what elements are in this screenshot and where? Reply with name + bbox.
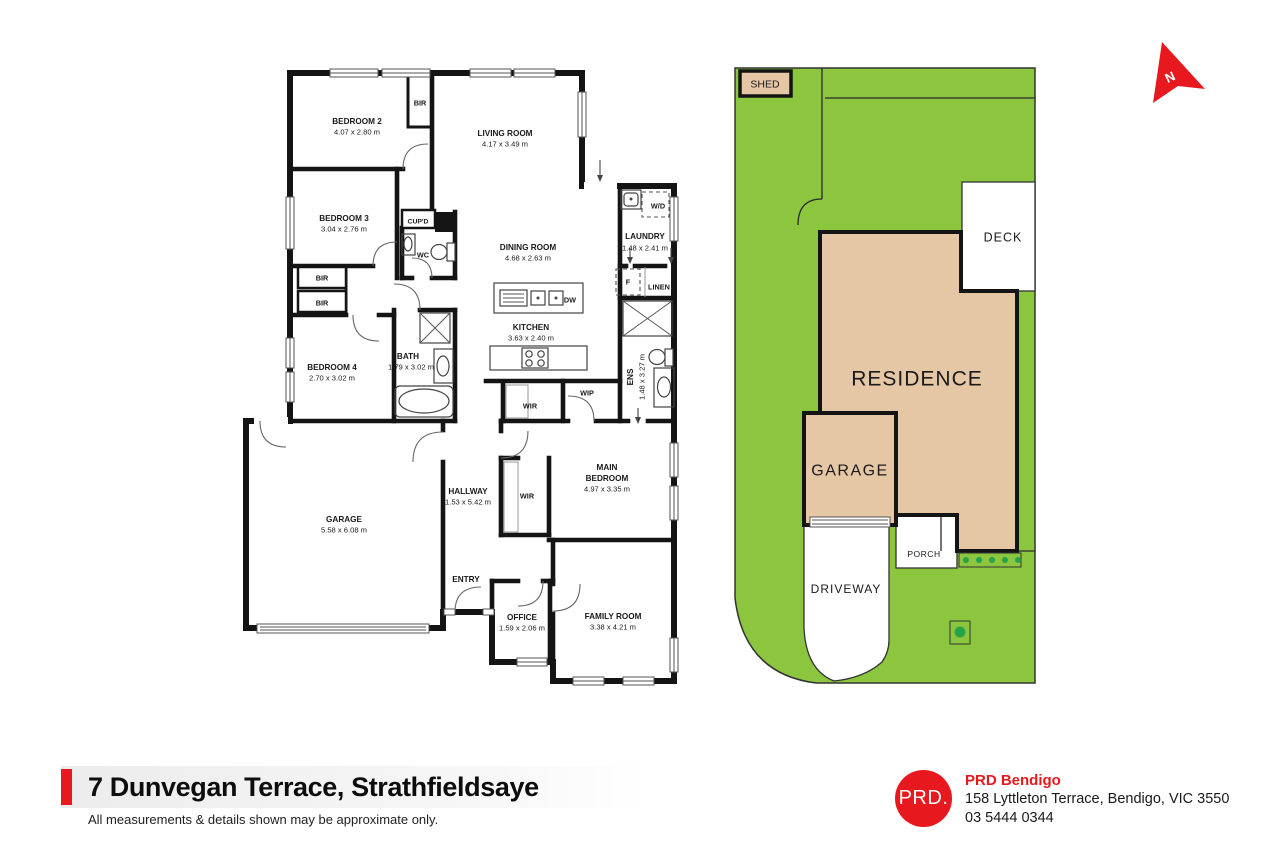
label-bedroom-4-21: BEDROOM 4 xyxy=(307,363,357,372)
disclaimer-text: All measurements & details shown may be … xyxy=(88,812,438,827)
label-4-07-x-2-80-m-1: 4.07 x 2.80 m xyxy=(334,128,380,137)
tree-dot xyxy=(955,627,966,638)
label-kitchen-19: KITCHEN xyxy=(513,323,549,332)
label-wir-28: WIR xyxy=(523,402,538,411)
label-1-48-x-2-41-m-13: 1.48 x 2.41 m xyxy=(622,244,668,253)
label-driveway-47: DRIVEWAY xyxy=(811,582,882,596)
agency-name: PRD Bendigo xyxy=(965,771,1229,790)
label-dw-18: DW xyxy=(564,296,576,305)
label-office-38: OFFICE xyxy=(507,613,538,622)
label-deck-43: DECK xyxy=(984,230,1023,244)
label-bir-2: BIR xyxy=(414,99,427,108)
prd-logo-icon: PRD. xyxy=(895,770,952,827)
label-laundry-12: LAUNDRY xyxy=(625,232,665,241)
wc-toilet-bowl xyxy=(431,245,447,260)
label-bedroom-2-0: BEDROOM 2 xyxy=(332,117,382,126)
label-f-14: F xyxy=(626,278,631,287)
agency-phone: 03 5444 0344 xyxy=(965,809,1229,828)
label-wir-31: WIR xyxy=(520,492,535,501)
label-bir-17: BIR xyxy=(316,299,329,308)
shrub-dot xyxy=(976,557,982,563)
label-garage-45: GARAGE xyxy=(811,463,888,480)
label-wc-8: WC xyxy=(417,251,430,260)
label-5-58-x-6-08-m-36: 5.58 x 6.08 m xyxy=(321,526,367,535)
agency-details: PRD Bendigo 158 Lyttleton Terrace, Bendi… xyxy=(965,770,1229,828)
label-linen-15: LINEN xyxy=(648,283,670,292)
agency-address: 158 Lyttleton Terrace, Bendigo, VIC 3550 xyxy=(965,790,1229,809)
label-porch-46: PORCH xyxy=(907,549,940,559)
label-bir-16: BIR xyxy=(316,274,329,283)
label-living-room-3: LIVING ROOM xyxy=(477,129,532,138)
ens-toilet-tank xyxy=(665,349,673,366)
footer-title-block: 7 Dunvegan Terrace, Strathfieldsaye xyxy=(61,766,647,808)
label-bath-23: BATH xyxy=(397,352,419,361)
label-ens-25: ENS xyxy=(626,368,635,385)
label-3-38-x-4-21-m-41: 3.38 x 4.21 m xyxy=(590,623,636,632)
label-1-79-x-3-02-m-24: 1.79 x 3.02 m xyxy=(388,363,434,372)
label-bedroom-33: BEDROOM xyxy=(586,474,629,483)
label-wip-27: WIP xyxy=(580,389,594,398)
label-bedroom-3-5: BEDROOM 3 xyxy=(319,214,369,223)
north-arrow-icon xyxy=(1153,42,1205,103)
label-4-97-x-3-35-m-34: 4.97 x 3.35 m xyxy=(584,485,630,494)
label-4-17-x-3-49-m-4: 4.17 x 3.49 m xyxy=(482,140,528,149)
shrub-dot xyxy=(963,557,969,563)
label-4-68-x-2-63-m-10: 4.68 x 2.63 m xyxy=(505,254,551,263)
label-main-32: MAIN xyxy=(597,463,618,472)
garage-door xyxy=(257,624,429,633)
driveway-area xyxy=(804,525,889,681)
property-address-title: 7 Dunvegan Terrace, Strathfieldsaye xyxy=(88,772,539,803)
label-hallway-29: HALLWAY xyxy=(448,487,488,496)
label-1-59-x-2-06-m-39: 1.59 x 2.06 m xyxy=(499,624,545,633)
wc-toilet-tank xyxy=(447,243,455,261)
label-residence-44: RESIDENCE xyxy=(851,367,983,390)
label-garage-35: GARAGE xyxy=(326,515,362,524)
label-1-53-x-5-42-m-30: 1.53 x 5.42 m xyxy=(445,498,491,507)
flyer-page: BEDROOM 24.07 x 2.80 mBIRLIVING ROOM4.17… xyxy=(0,0,1284,856)
label-dining-room-9: DINING ROOM xyxy=(500,243,557,252)
shrub-dot xyxy=(1002,557,1008,563)
label-shed-42: SHED xyxy=(750,79,780,91)
label-3-63-x-2-40-m-20: 3.63 x 2.40 m xyxy=(508,334,554,343)
label-cup-d-7: CUP'D xyxy=(408,218,429,225)
shrub-dot xyxy=(1015,557,1021,563)
shrub-dot xyxy=(989,557,995,563)
ens-toilet-bowl xyxy=(649,350,665,365)
plans-canvas: BEDROOM 24.07 x 2.80 mBIRLIVING ROOM4.17… xyxy=(0,0,1284,856)
porch-area xyxy=(896,515,957,568)
label-family-room-40: FAMILY ROOM xyxy=(585,612,642,621)
label-2-70-x-3-02-m-22: 2.70 x 3.02 m xyxy=(309,374,355,383)
label-w-d-11: W/D xyxy=(651,202,665,211)
label-entry-37: ENTRY xyxy=(452,575,480,584)
site-garage-door xyxy=(810,517,890,527)
label-3-04-x-2-76-m-6: 3.04 x 2.76 m xyxy=(321,225,367,234)
agency-brand-block: PRD. PRD Bendigo 158 Lyttleton Terrace, … xyxy=(895,770,1229,828)
accent-bar xyxy=(61,769,72,805)
label-1-48-x-3-27-m-26: 1.48 x 3.27 m xyxy=(638,354,647,400)
